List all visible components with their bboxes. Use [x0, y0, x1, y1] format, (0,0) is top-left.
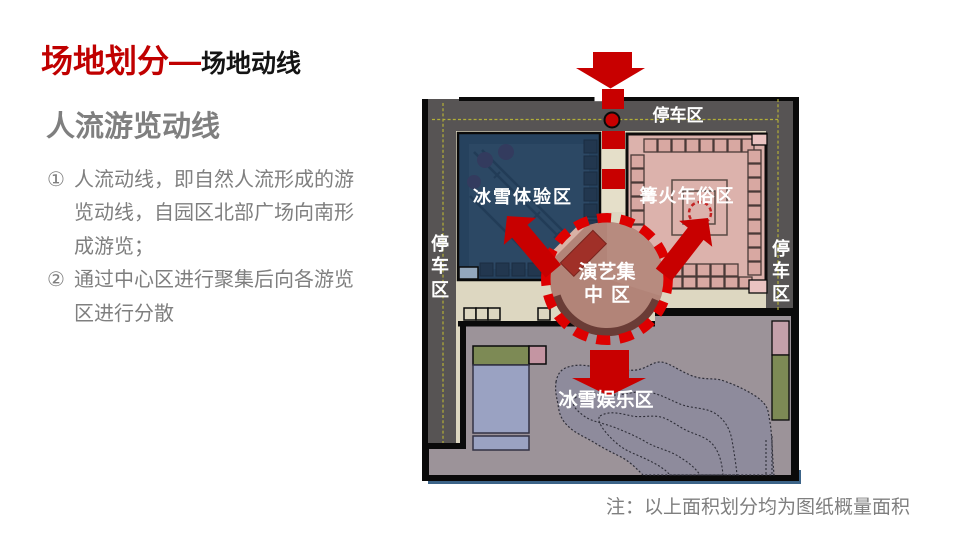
- svg-text:停: 停: [431, 233, 449, 254]
- svg-text:演艺集: 演艺集: [578, 260, 636, 283]
- svg-text:中区: 中区: [584, 283, 638, 306]
- svg-text:篝火年俗区: 篝火年俗区: [639, 185, 735, 206]
- svg-text:停: 停: [772, 238, 790, 259]
- svg-text:车: 车: [431, 255, 449, 276]
- svg-text:区: 区: [772, 284, 790, 304]
- svg-text:冰雪娱乐区: 冰雪娱乐区: [558, 388, 653, 411]
- svg-text:车: 车: [772, 260, 790, 281]
- svg-text:停车区: 停车区: [653, 105, 704, 125]
- svg-text:冰雪体验区: 冰雪体验区: [473, 186, 573, 207]
- svg-text:区: 区: [431, 280, 449, 300]
